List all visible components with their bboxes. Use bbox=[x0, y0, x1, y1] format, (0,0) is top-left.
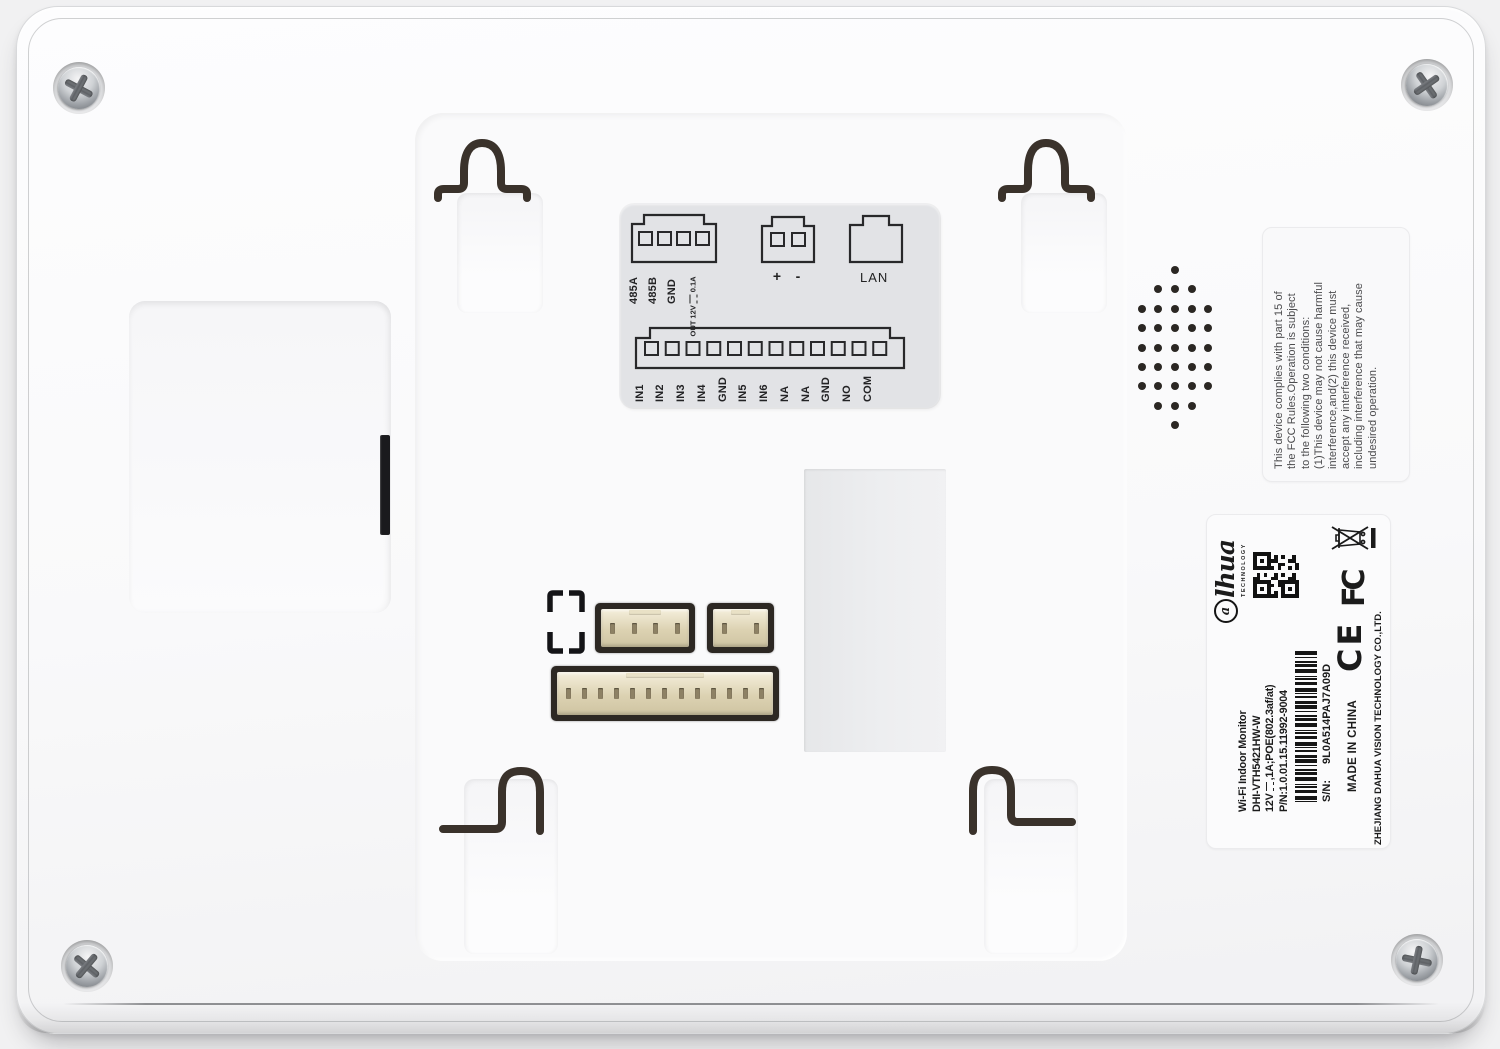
speaker-hole bbox=[1154, 305, 1162, 313]
io-pin-label: COM bbox=[862, 376, 874, 402]
io-pin-label: IN5 bbox=[737, 384, 749, 402]
qr-module bbox=[1274, 591, 1278, 595]
connector-pin bbox=[722, 623, 727, 634]
connector-pin bbox=[662, 688, 667, 699]
barcode-stripe bbox=[1295, 730, 1317, 731]
speaker-hole bbox=[1154, 344, 1162, 352]
qr-module bbox=[1295, 587, 1299, 591]
speaker-hole bbox=[1204, 344, 1212, 352]
speaker-hole bbox=[1171, 402, 1179, 410]
jst-connector-4pin bbox=[595, 603, 695, 653]
power-plus-label: + bbox=[770, 268, 784, 284]
qr-module bbox=[1271, 584, 1275, 588]
connector-pin bbox=[614, 688, 619, 699]
speaker-hole bbox=[1188, 285, 1196, 293]
speaker-hole bbox=[1171, 421, 1179, 429]
qr-module bbox=[1253, 555, 1257, 559]
qr-module bbox=[1267, 587, 1271, 591]
qr-code bbox=[1253, 552, 1299, 598]
barcode-stripe bbox=[1295, 696, 1317, 698]
barcode-stripe bbox=[1295, 693, 1317, 694]
qr-module bbox=[1267, 552, 1271, 556]
barcode-stripe bbox=[1295, 723, 1317, 727]
qr-module bbox=[1271, 566, 1275, 570]
serial-number: 9L0A514PAJ7A09D bbox=[1321, 664, 1333, 764]
connector-pin bbox=[743, 688, 748, 699]
speaker-hole bbox=[1171, 266, 1179, 274]
barcode-stripe bbox=[1295, 651, 1317, 655]
io-pin-label: NO bbox=[841, 385, 853, 402]
connector-pin bbox=[679, 688, 684, 699]
barcode-stripe bbox=[1295, 750, 1317, 752]
connector-pin bbox=[695, 688, 700, 699]
wall-hook-top-left bbox=[438, 143, 527, 198]
connector-pin bbox=[610, 623, 615, 634]
connector-pin bbox=[646, 688, 651, 699]
speaker-hole bbox=[1188, 363, 1196, 371]
part-number: P/N:1.0.01.15.11992-9004 bbox=[1278, 685, 1292, 812]
barcode-stripe bbox=[1295, 786, 1317, 788]
speaker-hole bbox=[1138, 363, 1146, 371]
io-pin-label: IN6 bbox=[758, 384, 770, 402]
out-12v-label: OUT 12V0.1A bbox=[688, 276, 698, 336]
qr-module bbox=[1278, 566, 1282, 570]
barcode-stripe bbox=[1295, 676, 1317, 677]
barcode-stripe bbox=[1295, 736, 1317, 739]
qr-module bbox=[1295, 594, 1299, 598]
barcode-stripe bbox=[1295, 701, 1317, 704]
io-pin-label: IN4 bbox=[696, 384, 708, 402]
qr-module bbox=[1260, 559, 1264, 563]
qr-module bbox=[1292, 573, 1296, 577]
qr-module bbox=[1295, 566, 1299, 570]
qr-module bbox=[1288, 566, 1292, 570]
screw-bottom-left bbox=[61, 940, 113, 992]
qr-module bbox=[1253, 584, 1257, 588]
barcode-stripe bbox=[1295, 711, 1317, 712]
dc-symbol-icon bbox=[1266, 782, 1274, 791]
rs485-pin-label: 485B bbox=[647, 277, 659, 304]
speaker-hole bbox=[1188, 402, 1196, 410]
screw-bottom-right bbox=[1391, 934, 1443, 986]
rs485-connector-outline bbox=[632, 215, 716, 262]
ce-mark-icon: CE bbox=[1331, 621, 1369, 672]
photo-stage: OUT 12V0.1A + - LAN 485A485BGNDIN1IN2IN3… bbox=[0, 0, 1500, 1049]
qr-module bbox=[1264, 573, 1268, 577]
qr-module bbox=[1295, 584, 1299, 588]
barcode-stripe bbox=[1295, 657, 1317, 658]
fcc-text: This device complies with part 15 of the… bbox=[1263, 228, 1380, 481]
qr-module bbox=[1253, 559, 1257, 563]
company-name: ZHEJIANG DAHUA VISION TECHNOLOGY CO.,LTD… bbox=[1373, 587, 1384, 845]
io-pin-label: IN1 bbox=[634, 384, 646, 402]
qr-module bbox=[1253, 587, 1257, 591]
speaker-hole bbox=[1138, 324, 1146, 332]
io-pin-label: GND bbox=[717, 377, 729, 402]
barcode-stripe bbox=[1295, 777, 1317, 781]
fcc-mark-icon: FC bbox=[1337, 572, 1372, 607]
phillips-slot-icon bbox=[1392, 935, 1442, 985]
barcode-stripe bbox=[1295, 682, 1317, 685]
speaker-hole bbox=[1188, 324, 1196, 332]
speaker-hole bbox=[1138, 344, 1146, 352]
lan-port-outline bbox=[850, 216, 902, 262]
barcode-stripe bbox=[1295, 715, 1317, 717]
qr-module bbox=[1295, 591, 1299, 595]
connector-pin bbox=[727, 688, 732, 699]
rs485-pin-label: GND bbox=[666, 279, 678, 304]
speaker-hole bbox=[1204, 363, 1212, 371]
barcode-stripe bbox=[1295, 742, 1317, 746]
qr-module bbox=[1295, 563, 1299, 567]
barcode-stripe bbox=[1295, 688, 1317, 692]
speaker-hole bbox=[1154, 285, 1162, 293]
connector-pin bbox=[598, 688, 603, 699]
power-connector-outline bbox=[762, 217, 814, 262]
io-pin-label: NA bbox=[800, 386, 812, 402]
connector-pin bbox=[582, 688, 587, 699]
barcode-stripe bbox=[1295, 765, 1317, 766]
product-label: a lhua TECHNOLOGY Wi-Fi Indoor Monitor D… bbox=[1206, 514, 1391, 849]
barcode-stripe bbox=[1295, 801, 1317, 802]
screw-top-left bbox=[53, 62, 105, 114]
speaker-hole bbox=[1171, 363, 1179, 371]
speaker-hole bbox=[1204, 324, 1212, 332]
speaker-hole bbox=[1171, 305, 1179, 313]
barcode-stripe bbox=[1295, 705, 1317, 709]
connector-pin bbox=[759, 688, 764, 699]
speaker-hole bbox=[1188, 382, 1196, 390]
qr-module bbox=[1288, 587, 1292, 591]
serial-barcode bbox=[1295, 616, 1317, 802]
io-pin-label: IN2 bbox=[654, 384, 666, 402]
barcode-stripe bbox=[1295, 669, 1317, 673]
connector-pin bbox=[632, 623, 637, 634]
model-number: DHI-VTH5421HW-W bbox=[1251, 685, 1265, 812]
barcode-stripe bbox=[1295, 784, 1317, 785]
qr-module bbox=[1281, 555, 1285, 559]
speaker-hole bbox=[1204, 382, 1212, 390]
connector-pin bbox=[566, 688, 571, 699]
serial-label: S/N: bbox=[1321, 780, 1333, 802]
qr-module bbox=[1281, 584, 1285, 588]
speaker-hole bbox=[1171, 382, 1179, 390]
barcode-stripe bbox=[1295, 718, 1317, 721]
io-pin-label: NA bbox=[779, 386, 791, 402]
barcode-stripe bbox=[1295, 759, 1317, 763]
connector-pin bbox=[754, 623, 759, 634]
speaker-hole bbox=[1188, 305, 1196, 313]
made-in-text: MADE IN CHINA bbox=[1347, 700, 1359, 792]
connector-diagram-art bbox=[620, 204, 940, 408]
speaker-hole bbox=[1188, 344, 1196, 352]
speaker-hole bbox=[1138, 382, 1146, 390]
connector-diagram-plate: OUT 12V0.1A + - LAN 485A485BGNDIN1IN2IN3… bbox=[620, 204, 940, 408]
jst-connector-13pin bbox=[551, 666, 779, 721]
barcode-stripe bbox=[1295, 796, 1317, 800]
barcode-stripe bbox=[1295, 790, 1317, 793]
barcode-stripe bbox=[1295, 755, 1317, 758]
speaker-hole bbox=[1154, 324, 1162, 332]
speaker-grille bbox=[1120, 258, 1230, 434]
qr-module bbox=[1295, 580, 1299, 584]
speaker-hole bbox=[1154, 382, 1162, 390]
screw-top-right bbox=[1401, 59, 1453, 111]
connector-pin bbox=[675, 623, 680, 634]
connector-pin bbox=[653, 623, 658, 634]
qr-module bbox=[1274, 573, 1278, 577]
qr-module bbox=[1257, 573, 1261, 577]
qr-module bbox=[1274, 594, 1278, 598]
qr-module bbox=[1281, 573, 1285, 577]
speaker-hole bbox=[1204, 305, 1212, 313]
barcode-stripe bbox=[1295, 664, 1317, 667]
wall-hook-top-right bbox=[1002, 143, 1091, 198]
dc-symbol-icon bbox=[689, 294, 697, 303]
power-rating: 12V,1A;POE(802.3af/at) bbox=[1264, 685, 1278, 812]
lan-label: LAN bbox=[860, 270, 888, 285]
io-pin-label: GND bbox=[820, 377, 832, 402]
weee-bin-icon bbox=[1329, 525, 1377, 551]
qr-module bbox=[1260, 587, 1264, 591]
speaker-hole bbox=[1171, 344, 1179, 352]
barcode-stripe bbox=[1295, 769, 1317, 771]
wall-hook-bottom-right bbox=[973, 770, 1072, 831]
product-info-lines: Wi-Fi Indoor Monitor DHI-VTH5421HW-W 12V… bbox=[1237, 685, 1291, 812]
dahua-logo: a lhua TECHNOLOGY bbox=[1211, 521, 1247, 623]
dahua-logo-a-icon: a bbox=[1214, 599, 1238, 623]
product-name: Wi-Fi Indoor Monitor bbox=[1237, 685, 1251, 812]
io-pin-label: IN3 bbox=[675, 384, 687, 402]
qr-module bbox=[1281, 563, 1285, 567]
barcode-stripe bbox=[1295, 747, 1317, 748]
qr-module bbox=[1281, 587, 1285, 591]
speaker-hole bbox=[1154, 402, 1162, 410]
barcode-stripe bbox=[1295, 772, 1317, 775]
barcode-stripe bbox=[1295, 732, 1317, 734]
speaker-hole bbox=[1171, 285, 1179, 293]
rs485-pin-label: 485A bbox=[628, 277, 640, 304]
serial-row: S/N:9L0A514PAJ7A09D bbox=[1321, 664, 1333, 802]
power-minus-label: - bbox=[791, 268, 805, 284]
qr-module bbox=[1274, 555, 1278, 559]
jst-connector-2pin bbox=[707, 603, 774, 653]
speaker-hole bbox=[1154, 363, 1162, 371]
fcc-compliance-label: This device complies with part 15 of the… bbox=[1262, 227, 1410, 482]
dahua-technology-text: TECHNOLOGY bbox=[1241, 521, 1247, 597]
barcode-stripe bbox=[1295, 678, 1317, 680]
barcode-stripe bbox=[1295, 661, 1317, 663]
connector-pin bbox=[630, 688, 635, 699]
alignment-bracket-marks bbox=[550, 593, 582, 651]
speaker-hole bbox=[1171, 324, 1179, 332]
connector-pin bbox=[711, 688, 716, 699]
qr-module bbox=[1292, 555, 1296, 559]
wall-hook-bottom-left bbox=[443, 771, 540, 831]
speaker-hole bbox=[1138, 305, 1146, 313]
